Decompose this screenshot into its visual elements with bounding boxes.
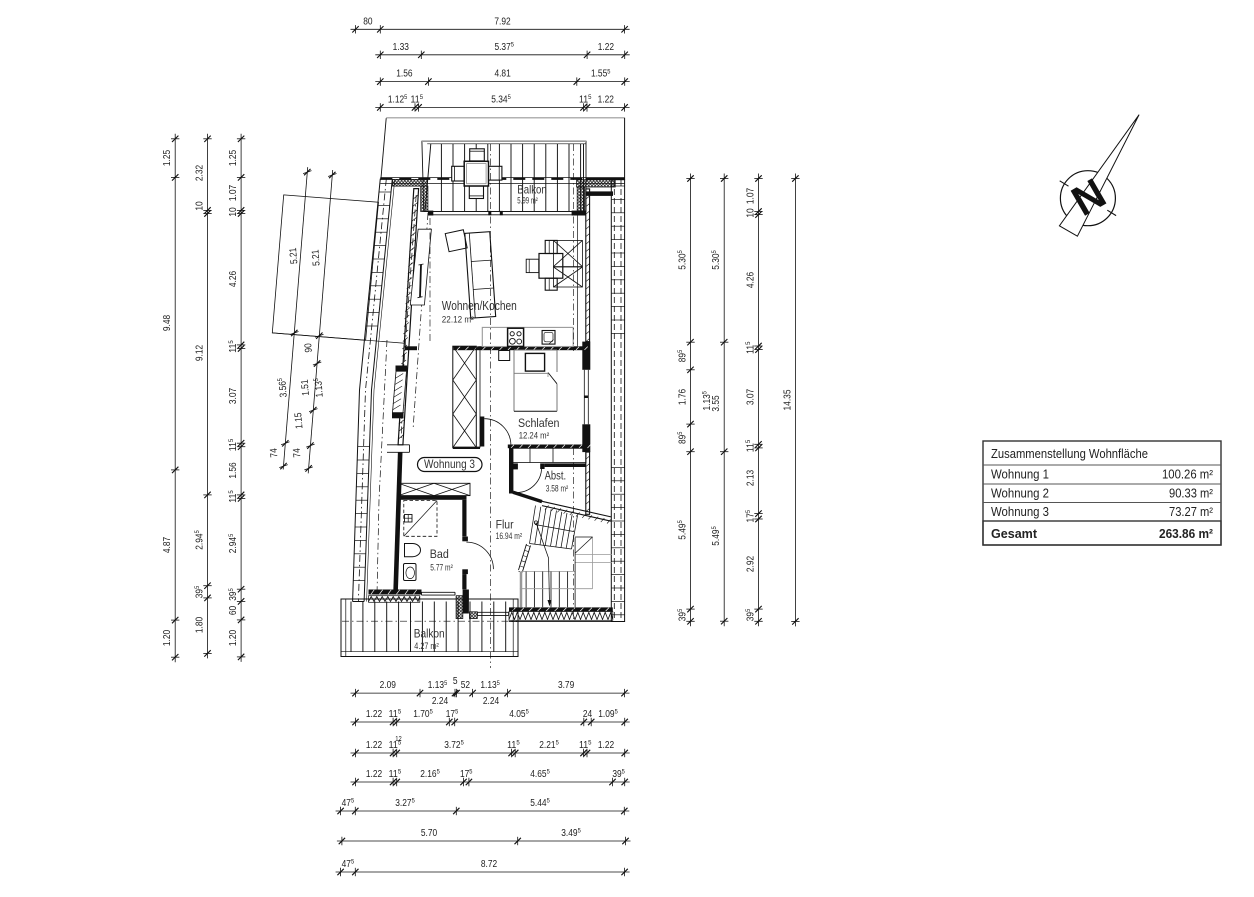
svg-text:4.27 m²: 4.27 m² — [414, 641, 439, 651]
svg-text:90.33 m²: 90.33 m² — [1169, 485, 1214, 500]
svg-text:1.76: 1.76 — [678, 388, 689, 405]
svg-text:1.25: 1.25 — [162, 149, 173, 166]
svg-text:12: 12 — [395, 736, 402, 743]
svg-text:16.94 m²: 16.94 m² — [496, 531, 522, 541]
svg-text:Schlafen: Schlafen — [518, 416, 560, 430]
svg-text:73.27 m²: 73.27 m² — [1169, 504, 1214, 519]
svg-text:10: 10 — [195, 201, 206, 211]
svg-text:10: 10 — [228, 207, 239, 217]
svg-text:1.22: 1.22 — [598, 94, 615, 105]
svg-text:1.22: 1.22 — [598, 740, 615, 751]
svg-text:Gesamt: Gesamt — [991, 526, 1038, 541]
svg-text:Abst.: Abst. — [545, 469, 567, 483]
svg-text:Flur: Flur — [496, 518, 514, 532]
svg-text:1.15: 1.15 — [293, 412, 305, 429]
svg-text:9.12: 9.12 — [195, 344, 206, 361]
svg-text:2.24: 2.24 — [483, 696, 500, 707]
svg-text:1.07: 1.07 — [228, 184, 239, 201]
svg-text:4.26: 4.26 — [228, 270, 239, 287]
svg-text:74: 74 — [292, 447, 304, 458]
svg-text:1.51: 1.51 — [300, 379, 312, 396]
svg-text:2.24: 2.24 — [432, 696, 449, 707]
svg-text:2.13: 2.13 — [746, 469, 757, 486]
svg-text:3.07: 3.07 — [228, 387, 239, 404]
svg-text:80: 80 — [363, 16, 373, 27]
svg-text:1.20: 1.20 — [228, 629, 239, 646]
svg-text:2.32: 2.32 — [195, 164, 206, 181]
svg-text:10: 10 — [746, 208, 757, 218]
svg-text:Wohnung 3: Wohnung 3 — [424, 457, 475, 471]
svg-text:5.21: 5.21 — [288, 247, 300, 264]
svg-text:100.26 m²: 100.26 m² — [1162, 467, 1214, 482]
svg-text:4.26: 4.26 — [746, 271, 757, 288]
svg-text:14.35: 14.35 — [782, 389, 793, 410]
svg-text:8.72: 8.72 — [481, 859, 498, 870]
svg-text:Zusammenstellung Wohnfläche: Zusammenstellung Wohnfläche — [991, 446, 1148, 461]
svg-text:24: 24 — [583, 709, 593, 720]
svg-text:3.58 m²: 3.58 m² — [546, 483, 569, 493]
svg-text:Wohnen/Kochen: Wohnen/Kochen — [442, 299, 517, 313]
svg-text:Wohnung 2: Wohnung 2 — [991, 485, 1049, 500]
svg-text:4.87: 4.87 — [162, 536, 173, 553]
svg-text:Bad: Bad — [430, 547, 449, 561]
svg-text:1.20: 1.20 — [162, 629, 173, 646]
svg-text:7.92: 7.92 — [494, 16, 511, 27]
svg-text:74: 74 — [269, 447, 281, 458]
svg-text:5.70: 5.70 — [421, 828, 438, 839]
svg-text:Balkon: Balkon — [517, 182, 547, 196]
svg-text:263.86 m²: 263.86 m² — [1159, 526, 1213, 541]
svg-text:5: 5 — [453, 676, 458, 687]
svg-text:1.22: 1.22 — [366, 740, 383, 751]
svg-text:1.33: 1.33 — [393, 42, 410, 53]
svg-text:1.22: 1.22 — [366, 709, 383, 720]
svg-text:Wohnung 3: Wohnung 3 — [991, 504, 1049, 519]
svg-text:5.77 m²: 5.77 m² — [430, 563, 453, 573]
svg-text:1.22: 1.22 — [598, 42, 615, 53]
svg-text:22.12 m²: 22.12 m² — [442, 315, 474, 325]
svg-text:1.25: 1.25 — [228, 149, 239, 166]
svg-text:3.55: 3.55 — [711, 395, 722, 412]
svg-text:1.56: 1.56 — [228, 462, 239, 479]
svg-text:4.81: 4.81 — [494, 69, 511, 80]
svg-text:5.99 m²: 5.99 m² — [517, 196, 538, 206]
svg-text:60: 60 — [228, 605, 239, 615]
svg-text:1.56: 1.56 — [396, 69, 413, 80]
svg-text:2.92: 2.92 — [746, 555, 757, 572]
svg-text:1.22: 1.22 — [366, 769, 383, 780]
svg-text:5.21: 5.21 — [310, 249, 322, 266]
svg-text:3.79: 3.79 — [558, 680, 575, 691]
svg-text:12.24 m²: 12.24 m² — [519, 431, 550, 441]
svg-text:Wohnung 1: Wohnung 1 — [991, 467, 1049, 482]
svg-text:2.09: 2.09 — [380, 680, 397, 691]
svg-text:90: 90 — [303, 342, 315, 353]
svg-text:1.07: 1.07 — [746, 187, 757, 204]
svg-text:1.80: 1.80 — [195, 616, 206, 633]
svg-text:9.48: 9.48 — [162, 314, 173, 331]
svg-text:52: 52 — [461, 680, 471, 691]
svg-text:3.07: 3.07 — [746, 388, 757, 405]
svg-text:Balkon: Balkon — [414, 627, 445, 641]
